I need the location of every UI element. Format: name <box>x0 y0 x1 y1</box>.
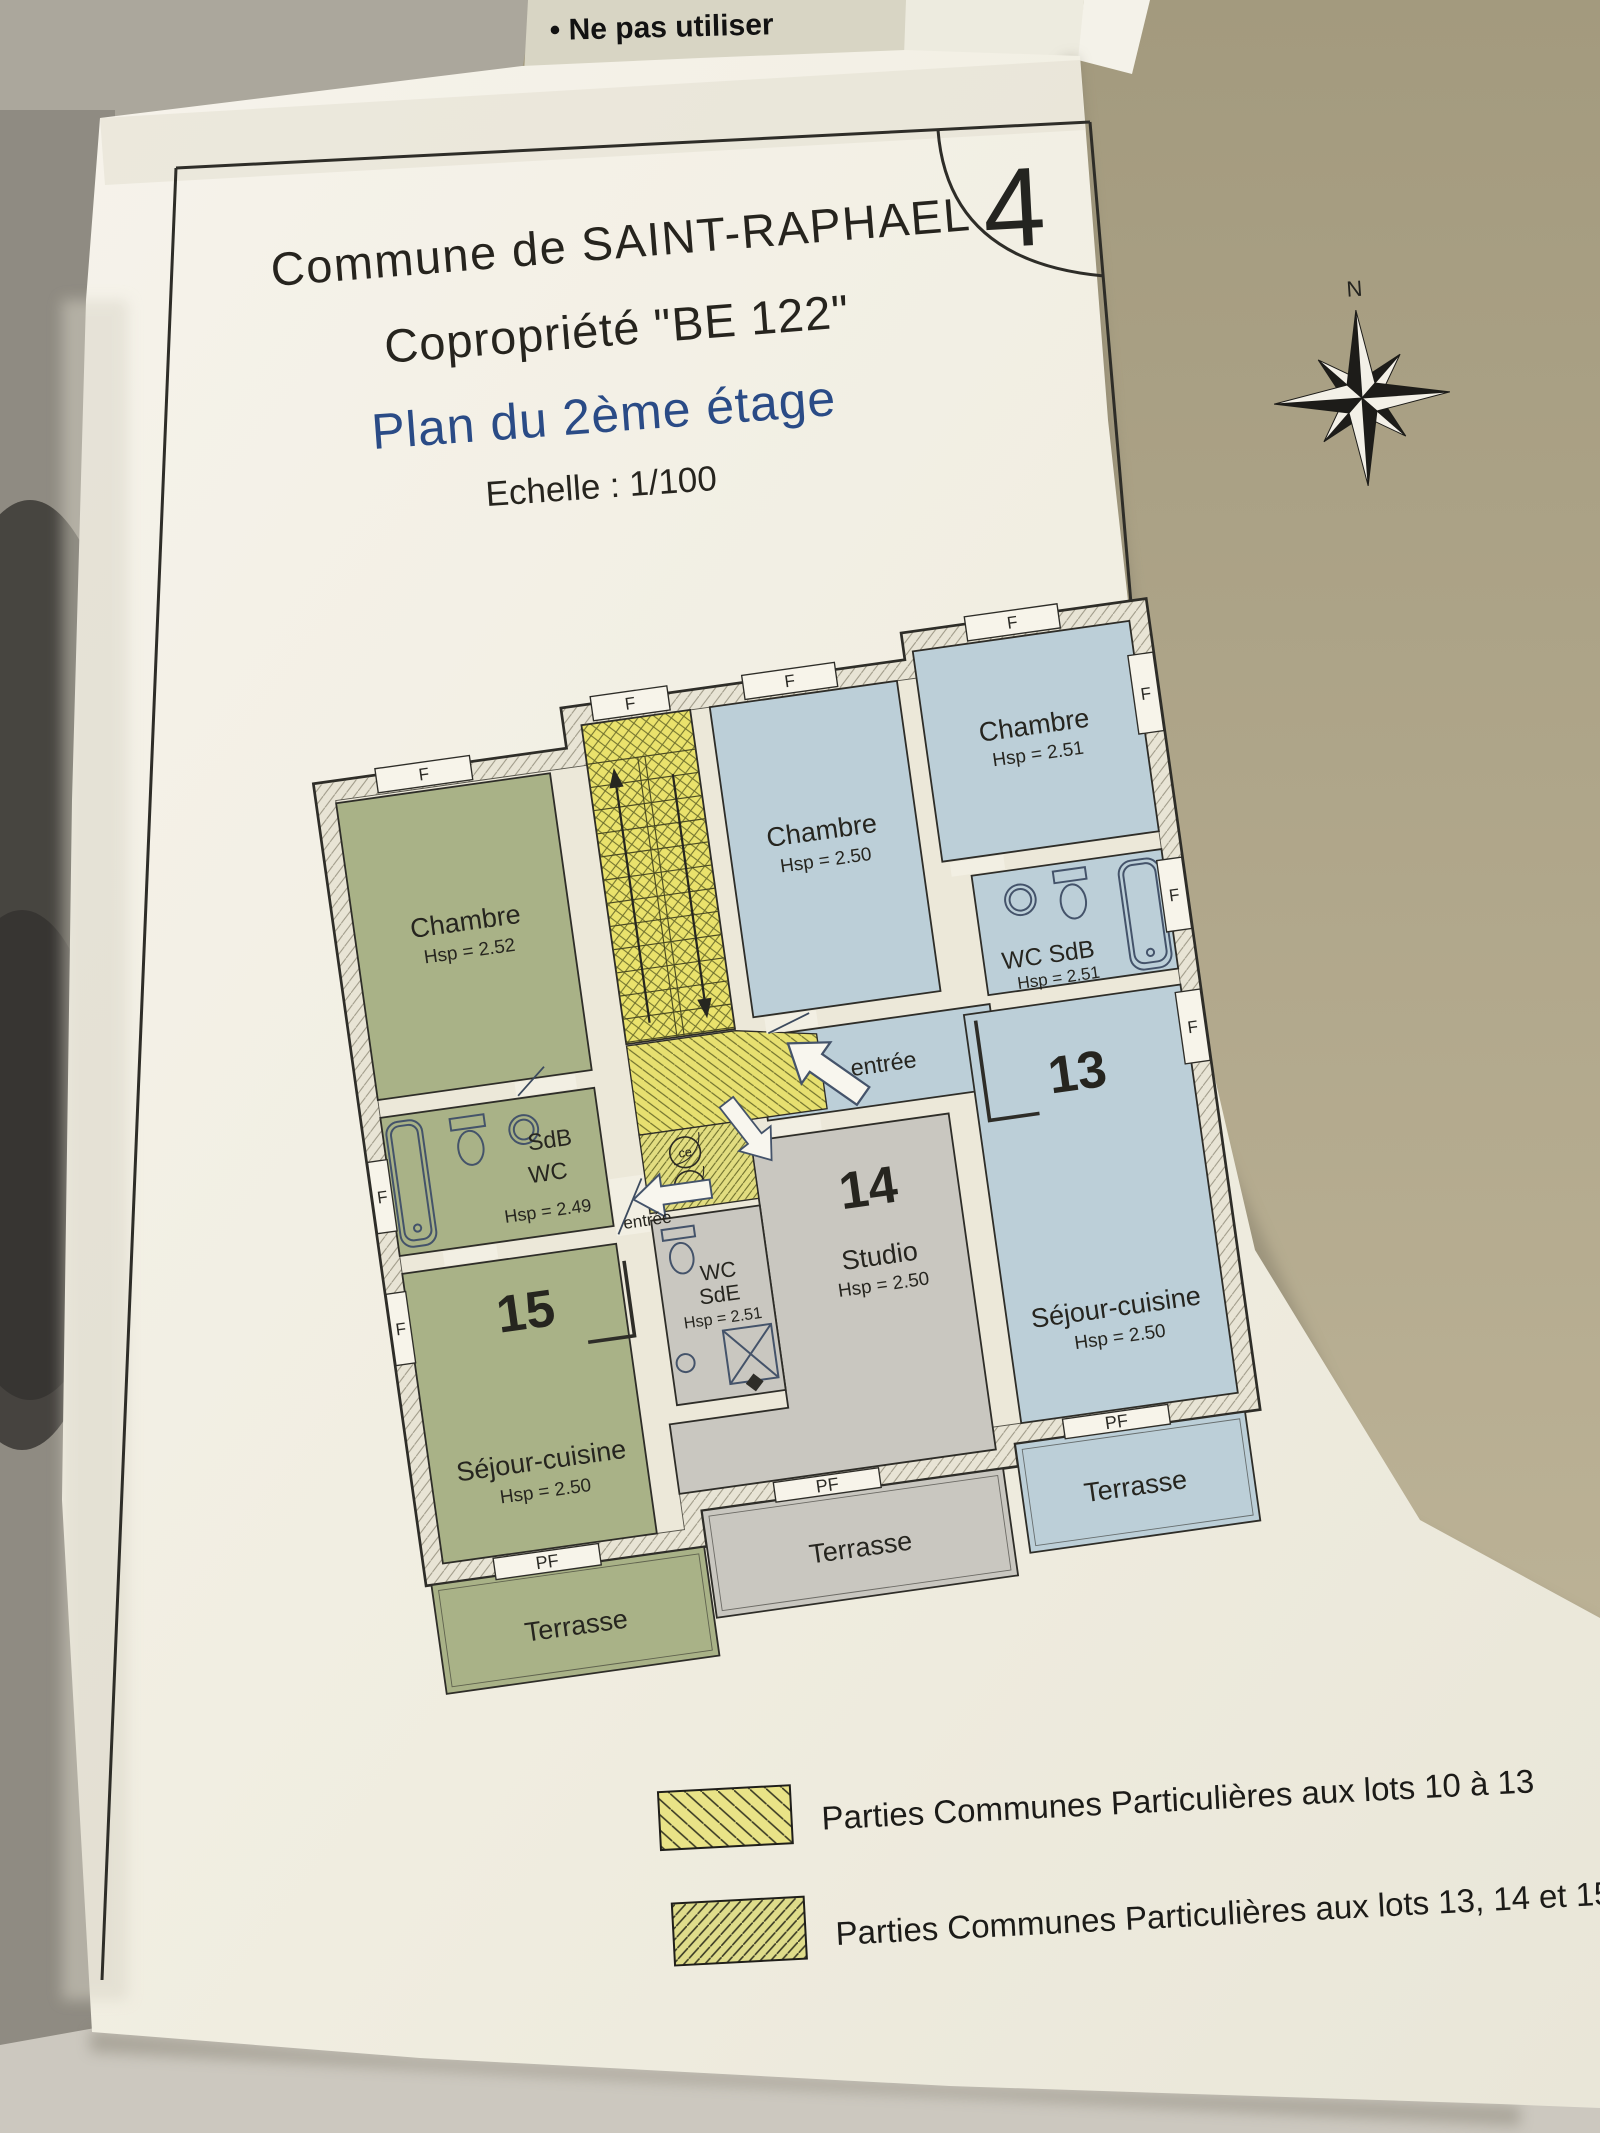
paper-left-shading <box>62 300 128 2000</box>
room-chambre-13b <box>913 621 1159 862</box>
legend-swatch-lots-10-13 <box>658 1785 793 1850</box>
paper-top-curl <box>904 0 1084 58</box>
label-lot-13-number: 13 <box>1045 1040 1111 1106</box>
label-lot-14-number: 14 <box>836 1156 902 1222</box>
french-window-label: PF <box>1104 1410 1130 1433</box>
french-window-label: PF <box>815 1474 841 1497</box>
compass-north-label: N <box>1346 276 1364 302</box>
photo-of-floor-plan-document: • Ne pas utiliser chargeur 4 Commune de … <box>0 0 1600 2133</box>
legend-swatch-lots-13-14-15 <box>672 1897 807 1966</box>
label-wc-15: WC <box>527 1157 569 1188</box>
page-number: 4 <box>980 144 1049 272</box>
background-document-line1: • Ne pas utiliser <box>549 8 774 47</box>
duct-label-1: ce <box>678 1145 693 1161</box>
label-lot-15-number: 15 <box>493 1279 559 1345</box>
french-window-label: PF <box>534 1550 560 1573</box>
